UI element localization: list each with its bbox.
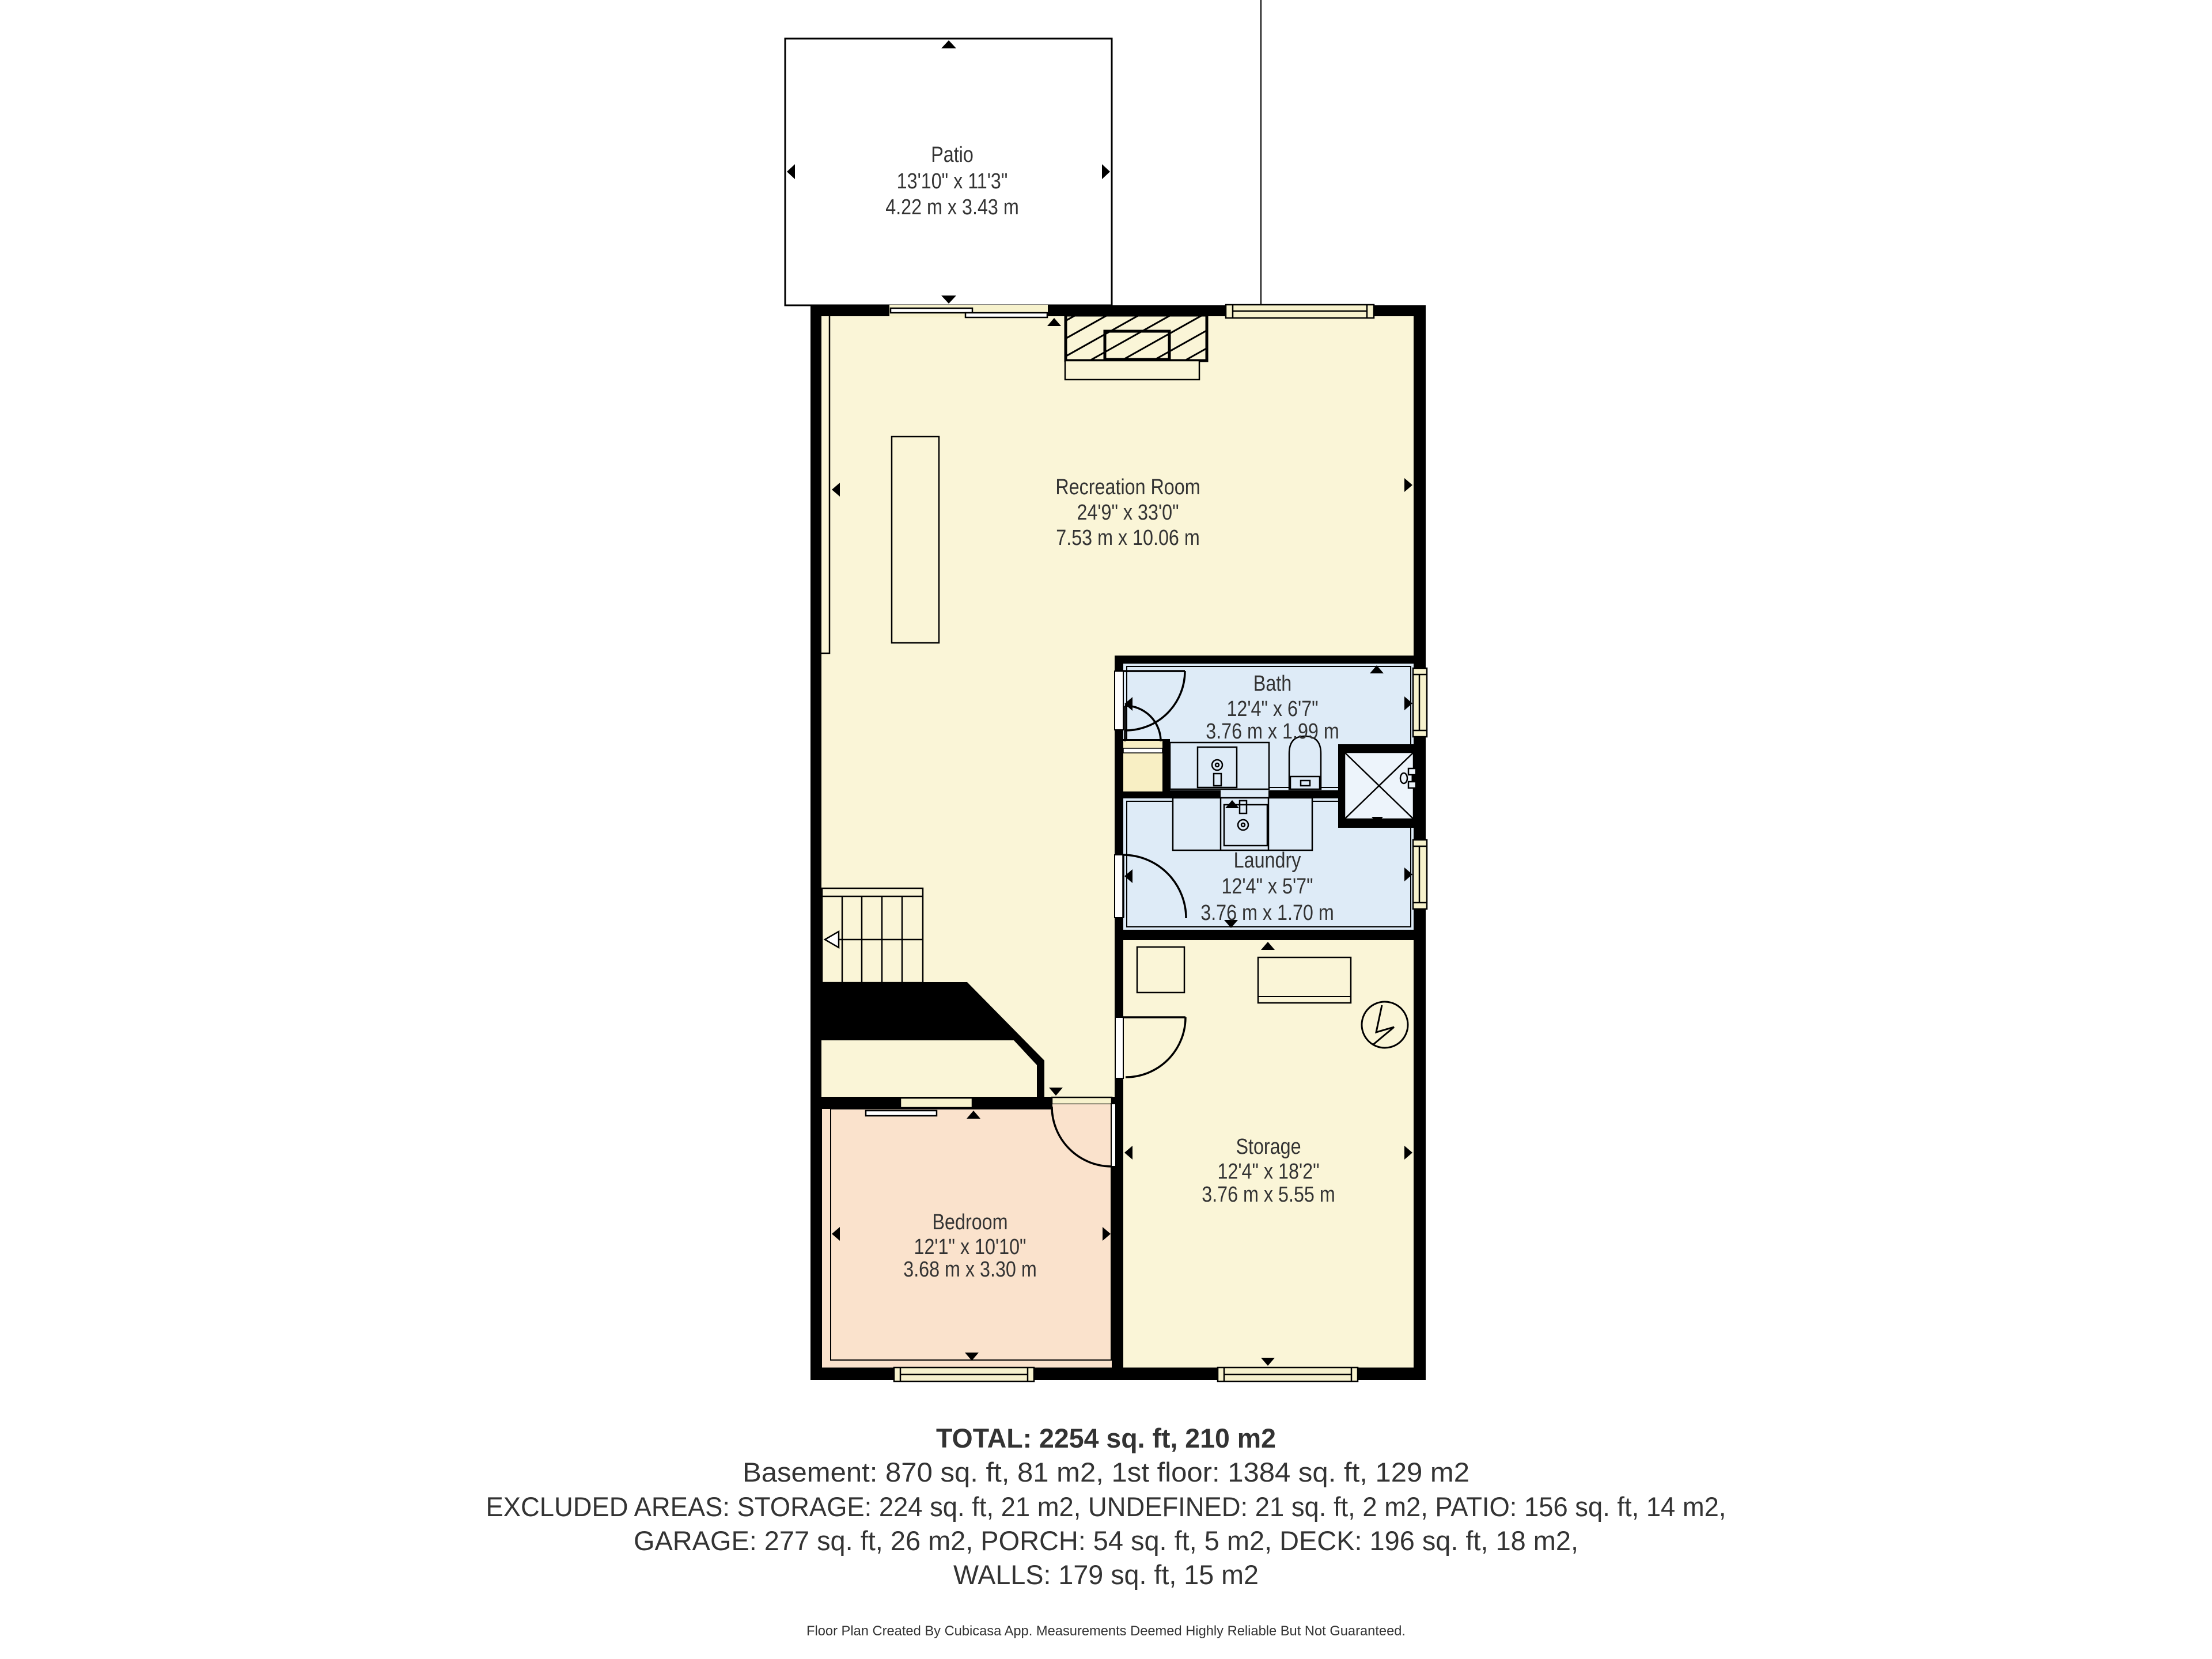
svg-text:3.68 m x 3.30 m: 3.68 m x 3.30 m <box>903 1257 1036 1282</box>
svg-text:Storage: Storage <box>1236 1135 1301 1159</box>
svg-text:13'10" x 11'3": 13'10" x 11'3" <box>897 169 1008 194</box>
svg-text:Laundry: Laundry <box>1234 849 1301 873</box>
svg-text:12'1" x 10'10": 12'1" x 10'10" <box>914 1235 1026 1259</box>
svg-text:3.76 m x 5.55 m: 3.76 m x 5.55 m <box>1202 1183 1335 1207</box>
svg-text:Bath: Bath <box>1253 672 1291 696</box>
svg-text:7.53 m x 10.06 m: 7.53 m x 10.06 m <box>1056 526 1199 550</box>
svg-text:Floor Plan Created By Cubicasa: Floor Plan Created By Cubicasa App. Meas… <box>806 1623 1406 1639</box>
svg-text:Bedroom: Bedroom <box>932 1210 1007 1234</box>
svg-text:12'4" x 5'7": 12'4" x 5'7" <box>1221 874 1313 899</box>
svg-text:3.76 m x 1.70 m: 3.76 m x 1.70 m <box>1200 901 1334 925</box>
svg-text:EXCLUDED AREAS: STORAGE: 224 s: EXCLUDED AREAS: STORAGE: 224 sq. ft, 21 … <box>486 1491 1726 1522</box>
svg-text:3.76 m x 1.99 m: 3.76 m x 1.99 m <box>1206 719 1339 744</box>
svg-text:Basement: 870 sq. ft, 81 m2, 1: Basement: 870 sq. ft, 81 m2, 1st floor: … <box>743 1457 1469 1487</box>
svg-text:WALLS: 179 sq. ft, 15 m2: WALLS: 179 sq. ft, 15 m2 <box>953 1559 1259 1590</box>
svg-text:TOTAL: 2254 sq. ft, 210 m2: TOTAL: 2254 sq. ft, 210 m2 <box>936 1423 1276 1453</box>
svg-text:Patio: Patio <box>931 143 974 167</box>
svg-text:Recreation Room: Recreation Room <box>1055 475 1200 499</box>
svg-text:4.22 m x 3.43 m: 4.22 m x 3.43 m <box>885 195 1018 219</box>
svg-text:12'4" x 6'7": 12'4" x 6'7" <box>1226 697 1318 721</box>
svg-text:GARAGE: 277 sq. ft, 26 m2, POR: GARAGE: 277 sq. ft, 26 m2, PORCH: 54 sq.… <box>634 1525 1578 1556</box>
svg-text:24'9" x 33'0": 24'9" x 33'0" <box>1077 501 1179 525</box>
svg-text:12'4" x 18'2": 12'4" x 18'2" <box>1217 1160 1319 1184</box>
